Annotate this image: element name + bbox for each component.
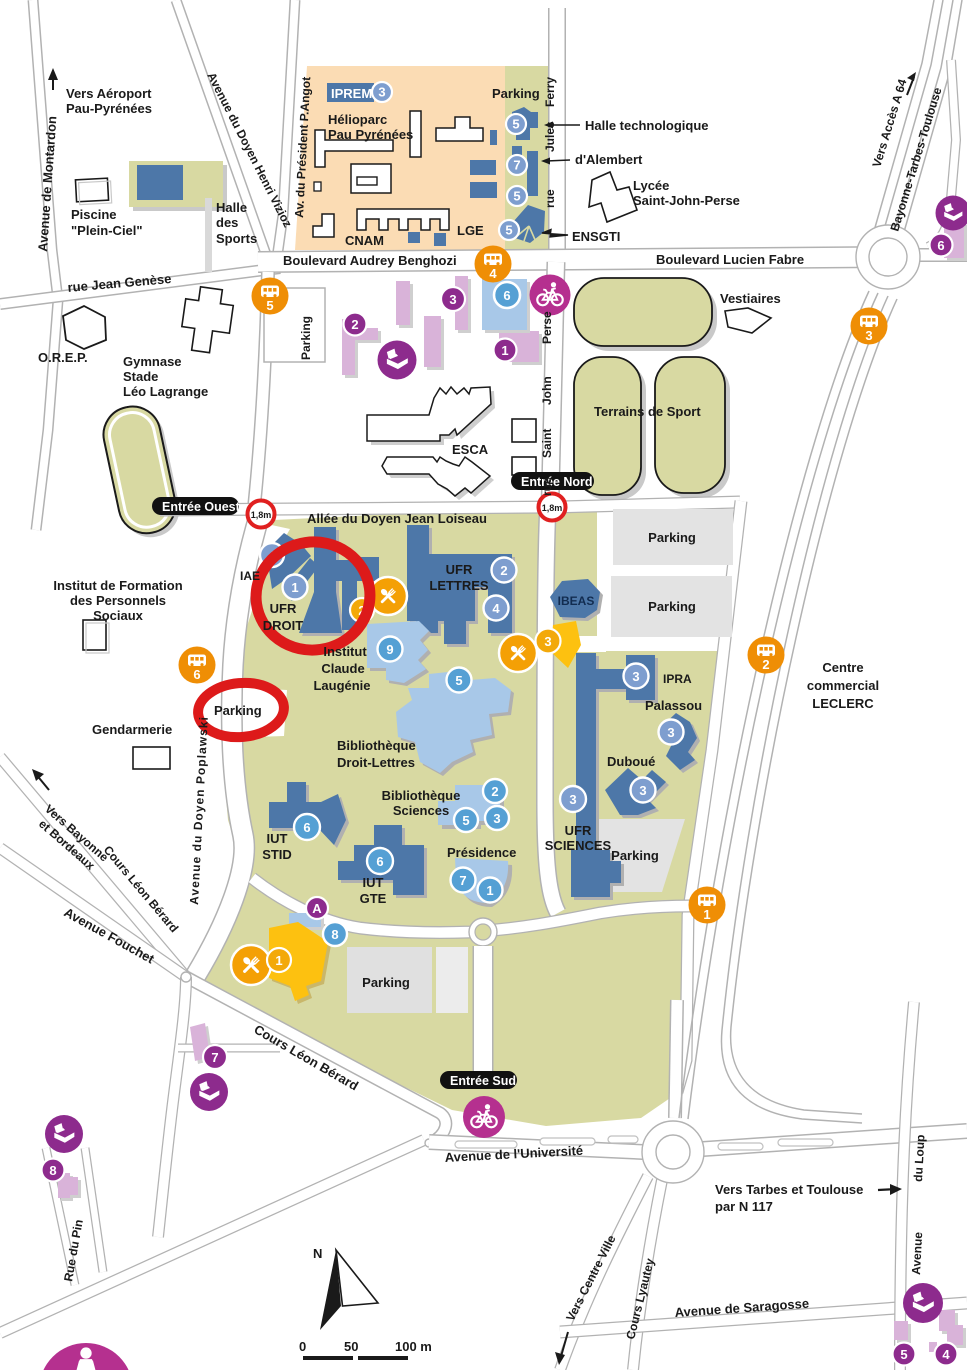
- svg-text:des: des: [216, 215, 238, 230]
- svg-text:3: 3: [632, 669, 639, 684]
- svg-text:ENSGTI: ENSGTI: [572, 229, 620, 244]
- svg-text:Palassou: Palassou: [645, 698, 702, 713]
- svg-text:Parking: Parking: [362, 975, 410, 990]
- svg-text:commercial: commercial: [807, 678, 879, 693]
- svg-text:par N 117: par N 117: [715, 1199, 773, 1214]
- svg-text:IAE: IAE: [240, 569, 260, 583]
- svg-text:3: 3: [667, 725, 674, 740]
- svg-text:Ferry: Ferry: [543, 77, 557, 107]
- svg-text:1: 1: [275, 953, 282, 968]
- svg-text:Parking: Parking: [648, 530, 696, 545]
- svg-text:LGE: LGE: [457, 223, 484, 238]
- svg-text:Gymnase: Gymnase: [123, 354, 182, 369]
- svg-text:des Personnels: des Personnels: [70, 593, 166, 608]
- svg-text:Stade: Stade: [123, 369, 158, 384]
- svg-text:6: 6: [303, 820, 310, 835]
- svg-text:Droit-Lettres: Droit-Lettres: [337, 755, 415, 770]
- svg-text:Pau-Pyrénées: Pau-Pyrénées: [66, 101, 152, 116]
- svg-text:6: 6: [193, 667, 200, 682]
- svg-text:Vers Aéroport: Vers Aéroport: [66, 86, 152, 101]
- svg-text:7: 7: [513, 158, 520, 173]
- svg-text:7: 7: [211, 1050, 218, 1065]
- svg-text:50: 50: [344, 1339, 358, 1354]
- svg-text:8: 8: [49, 1163, 56, 1178]
- svg-text:UFR: UFR: [446, 562, 473, 577]
- svg-text:1: 1: [703, 907, 710, 922]
- svg-text:GTE: GTE: [360, 891, 387, 906]
- svg-text:2: 2: [351, 317, 358, 332]
- svg-text:9: 9: [386, 642, 393, 657]
- svg-text:3: 3: [449, 292, 456, 307]
- svg-text:6: 6: [503, 288, 510, 303]
- svg-text:UFR: UFR: [270, 601, 297, 616]
- svg-text:Duboué: Duboué: [607, 754, 655, 769]
- svg-text:rue: rue: [540, 477, 554, 496]
- svg-text:Entrée Nord: Entrée Nord: [521, 475, 593, 489]
- svg-text:1: 1: [486, 883, 493, 898]
- svg-text:0: 0: [299, 1339, 306, 1354]
- svg-text:Saint-John-Perse: Saint-John-Perse: [633, 193, 740, 208]
- svg-text:Pau Pyrénées: Pau Pyrénées: [328, 127, 413, 142]
- svg-text:Terrains de Sport: Terrains de Sport: [594, 404, 701, 419]
- svg-text:CNAM: CNAM: [345, 233, 384, 248]
- svg-text:Hélioparc: Hélioparc: [328, 112, 387, 127]
- svg-text:Halle technologique: Halle technologique: [585, 118, 709, 133]
- svg-text:du Loup: du Loup: [911, 1134, 927, 1182]
- svg-text:Parking: Parking: [492, 86, 540, 101]
- svg-text:5: 5: [505, 223, 512, 238]
- svg-text:Institut: Institut: [323, 644, 367, 659]
- svg-text:Parking: Parking: [214, 703, 262, 718]
- svg-text:Parking: Parking: [299, 316, 313, 360]
- svg-text:Présidence: Présidence: [447, 845, 516, 860]
- svg-text:100 m: 100 m: [395, 1339, 432, 1354]
- svg-text:Centre: Centre: [822, 660, 863, 675]
- svg-text:N: N: [313, 1246, 322, 1261]
- svg-text:rue: rue: [543, 189, 557, 208]
- svg-text:Saint: Saint: [540, 429, 554, 458]
- svg-text:Institut de Formation: Institut de Formation: [53, 578, 182, 593]
- svg-text:3: 3: [544, 634, 551, 649]
- svg-text:Parking: Parking: [611, 848, 659, 863]
- svg-text:1,8m: 1,8m: [542, 503, 563, 513]
- svg-text:Claude: Claude: [321, 661, 364, 676]
- svg-text:IUT: IUT: [363, 875, 384, 890]
- svg-text:5: 5: [900, 1347, 907, 1362]
- svg-text:STID: STID: [262, 847, 292, 862]
- svg-text:5: 5: [455, 673, 462, 688]
- svg-text:Vestiaires: Vestiaires: [720, 291, 781, 306]
- svg-text:UFR: UFR: [565, 823, 592, 838]
- svg-text:Perse: Perse: [540, 311, 554, 344]
- svg-text:Sciences: Sciences: [393, 803, 449, 818]
- svg-text:Léo Lagrange: Léo Lagrange: [123, 384, 208, 399]
- svg-text:2: 2: [491, 784, 498, 799]
- svg-text:Bibliothèque: Bibliothèque: [337, 738, 416, 753]
- svg-text:IPRA: IPRA: [663, 672, 692, 686]
- svg-text:Halle: Halle: [216, 200, 247, 215]
- svg-text:1,8m: 1,8m: [251, 510, 272, 520]
- svg-text:6: 6: [937, 238, 944, 253]
- svg-text:3: 3: [639, 783, 646, 798]
- svg-text:Allée du Doyen Jean Loiseau: Allée du Doyen Jean Loiseau: [307, 511, 487, 526]
- svg-text:Sports: Sports: [216, 231, 257, 246]
- svg-text:Laugénie: Laugénie: [313, 678, 370, 693]
- svg-text:DROIT: DROIT: [263, 618, 304, 633]
- svg-text:d'Alembert: d'Alembert: [575, 152, 643, 167]
- svg-text:Boulevard Lucien Fabre: Boulevard Lucien Fabre: [656, 252, 804, 267]
- svg-text:SCIENCES: SCIENCES: [545, 838, 612, 853]
- svg-text:John: John: [540, 376, 554, 405]
- svg-text:IUT: IUT: [267, 831, 288, 846]
- svg-text:Lycée: Lycée: [633, 178, 669, 193]
- svg-text:"Plein-Ciel": "Plein-Ciel": [71, 223, 143, 238]
- svg-text:1: 1: [501, 343, 508, 358]
- svg-text:Entrée Sud: Entrée Sud: [450, 1074, 516, 1088]
- svg-text:IPREM: IPREM: [331, 86, 372, 101]
- svg-text:O.R.E.P.: O.R.E.P.: [38, 350, 88, 365]
- svg-text:3: 3: [378, 85, 385, 100]
- svg-text:5: 5: [462, 813, 469, 828]
- svg-text:Vers Tarbes et Toulouse: Vers Tarbes et Toulouse: [715, 1182, 863, 1197]
- svg-text:Boulevard Audrey Benghozi: Boulevard Audrey Benghozi: [283, 253, 457, 268]
- svg-text:4: 4: [489, 266, 497, 281]
- svg-text:5: 5: [512, 117, 519, 132]
- svg-text:2: 2: [500, 563, 507, 578]
- svg-text:3: 3: [493, 811, 500, 826]
- svg-text:3: 3: [569, 792, 576, 807]
- svg-text:ESCA: ESCA: [452, 442, 489, 457]
- svg-text:7: 7: [459, 873, 466, 888]
- svg-text:4: 4: [942, 1347, 950, 1362]
- svg-text:LETTRES: LETTRES: [429, 578, 489, 593]
- svg-text:Entrée Ouest: Entrée Ouest: [162, 500, 241, 514]
- svg-text:6: 6: [376, 854, 383, 869]
- svg-text:1: 1: [291, 580, 298, 595]
- svg-text:A: A: [312, 901, 322, 916]
- svg-text:5: 5: [266, 298, 273, 313]
- svg-text:3: 3: [865, 328, 872, 343]
- svg-text:Avenue: Avenue: [909, 1231, 925, 1275]
- svg-text:Piscine: Piscine: [71, 207, 117, 222]
- svg-text:Parking: Parking: [648, 599, 696, 614]
- svg-text:IBEAS: IBEAS: [558, 594, 595, 608]
- svg-text:Gendarmerie: Gendarmerie: [92, 722, 172, 737]
- svg-text:Jules: Jules: [543, 121, 557, 152]
- svg-text:8: 8: [331, 927, 338, 942]
- svg-text:LECLERC: LECLERC: [812, 696, 874, 711]
- svg-text:4: 4: [492, 601, 500, 616]
- svg-text:Bibliothèque: Bibliothèque: [382, 788, 461, 803]
- svg-text:5: 5: [513, 189, 520, 204]
- svg-text:Sociaux: Sociaux: [93, 608, 144, 623]
- svg-text:2: 2: [762, 657, 769, 672]
